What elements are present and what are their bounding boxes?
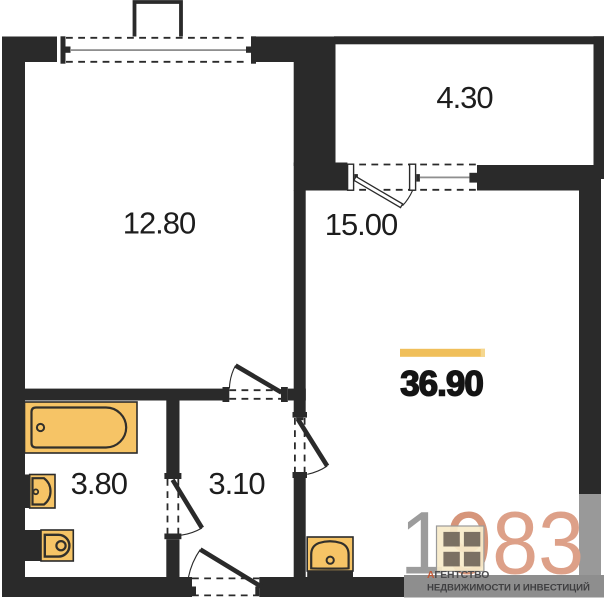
svg-text:3.10: 3.10 [208,466,265,501]
svg-text:АГЕНТСТВО: АГЕНТСТВО [427,570,489,581]
svg-text:12.80: 12.80 [123,206,196,241]
svg-text:3.80: 3.80 [71,466,128,501]
svg-text:НЕДВИЖИМОСТИ И ИНВЕСТИЦИЙ: НЕДВИЖИМОСТИ И ИНВЕСТИЦИЙ [427,581,590,593]
svg-text:4.30: 4.30 [436,80,493,115]
svg-text:36.90: 36.90 [400,365,483,404]
svg-text:15.00: 15.00 [325,207,398,242]
